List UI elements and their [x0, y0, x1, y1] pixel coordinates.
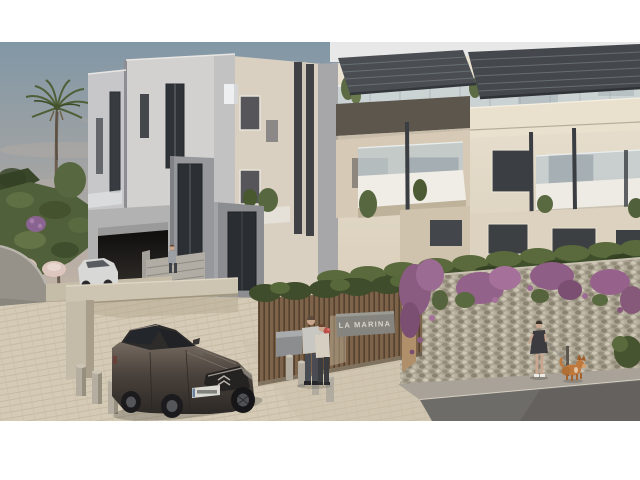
pergola-right	[468, 44, 640, 98]
purple-shrub	[26, 216, 46, 232]
ac-unit	[224, 84, 238, 104]
scene-canvas: LA MARINA	[0, 0, 640, 480]
render-image: LA MARINA	[0, 0, 640, 480]
bench	[276, 330, 302, 357]
taillight	[113, 356, 117, 364]
letterbox-top	[0, 0, 640, 42]
letterbox-bottom	[0, 421, 640, 480]
sign-text: LA MARINA	[338, 319, 391, 330]
entrance-sign: LA MARINA	[336, 311, 395, 337]
